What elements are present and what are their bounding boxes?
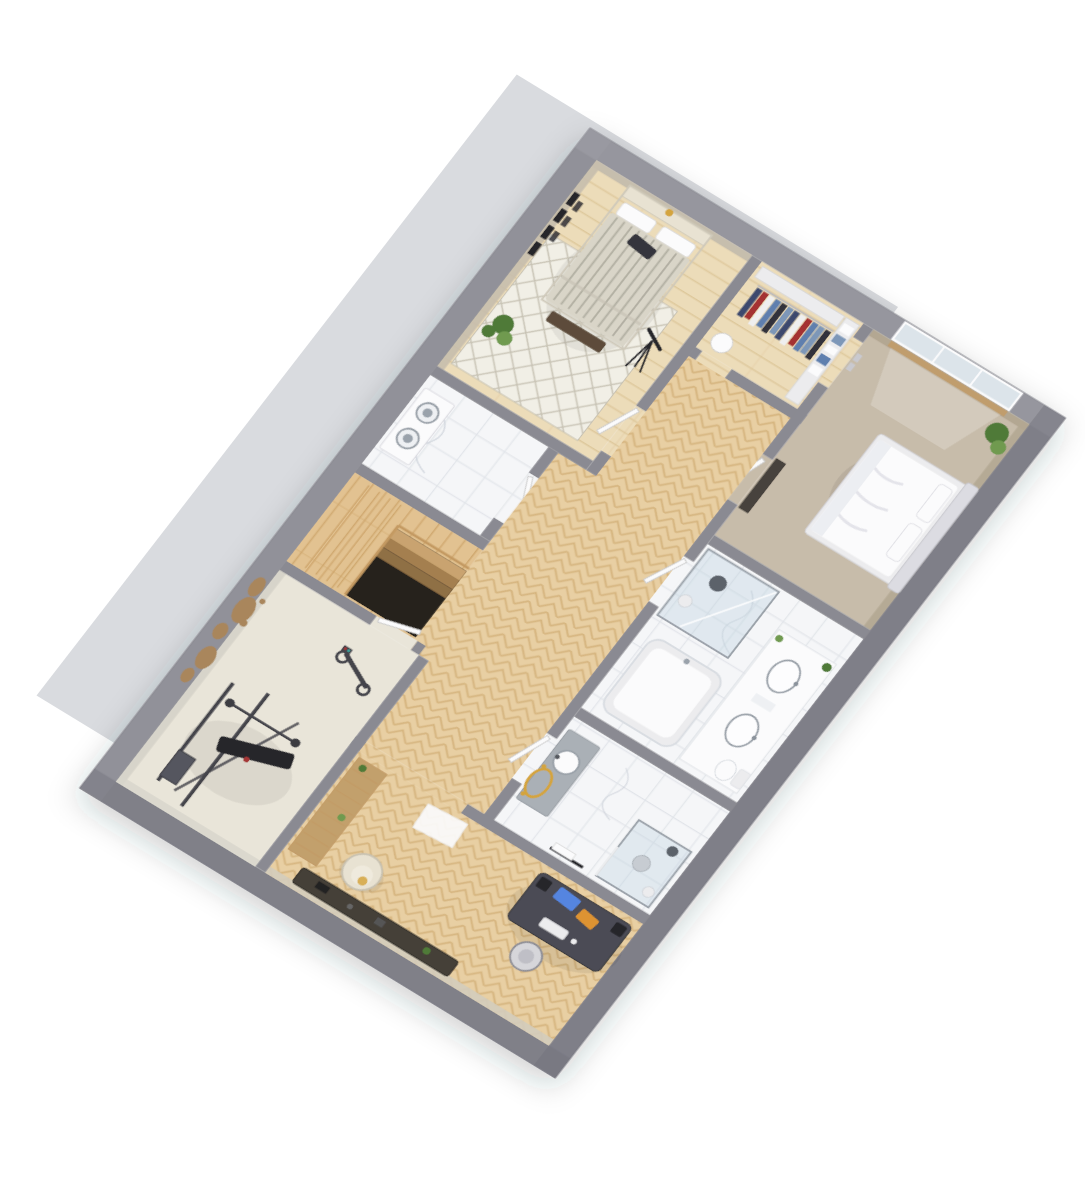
floor-plan-group <box>80 128 1066 1078</box>
floor-plan-svg <box>0 0 1085 1200</box>
floor-plan-scene <box>0 0 1085 1200</box>
